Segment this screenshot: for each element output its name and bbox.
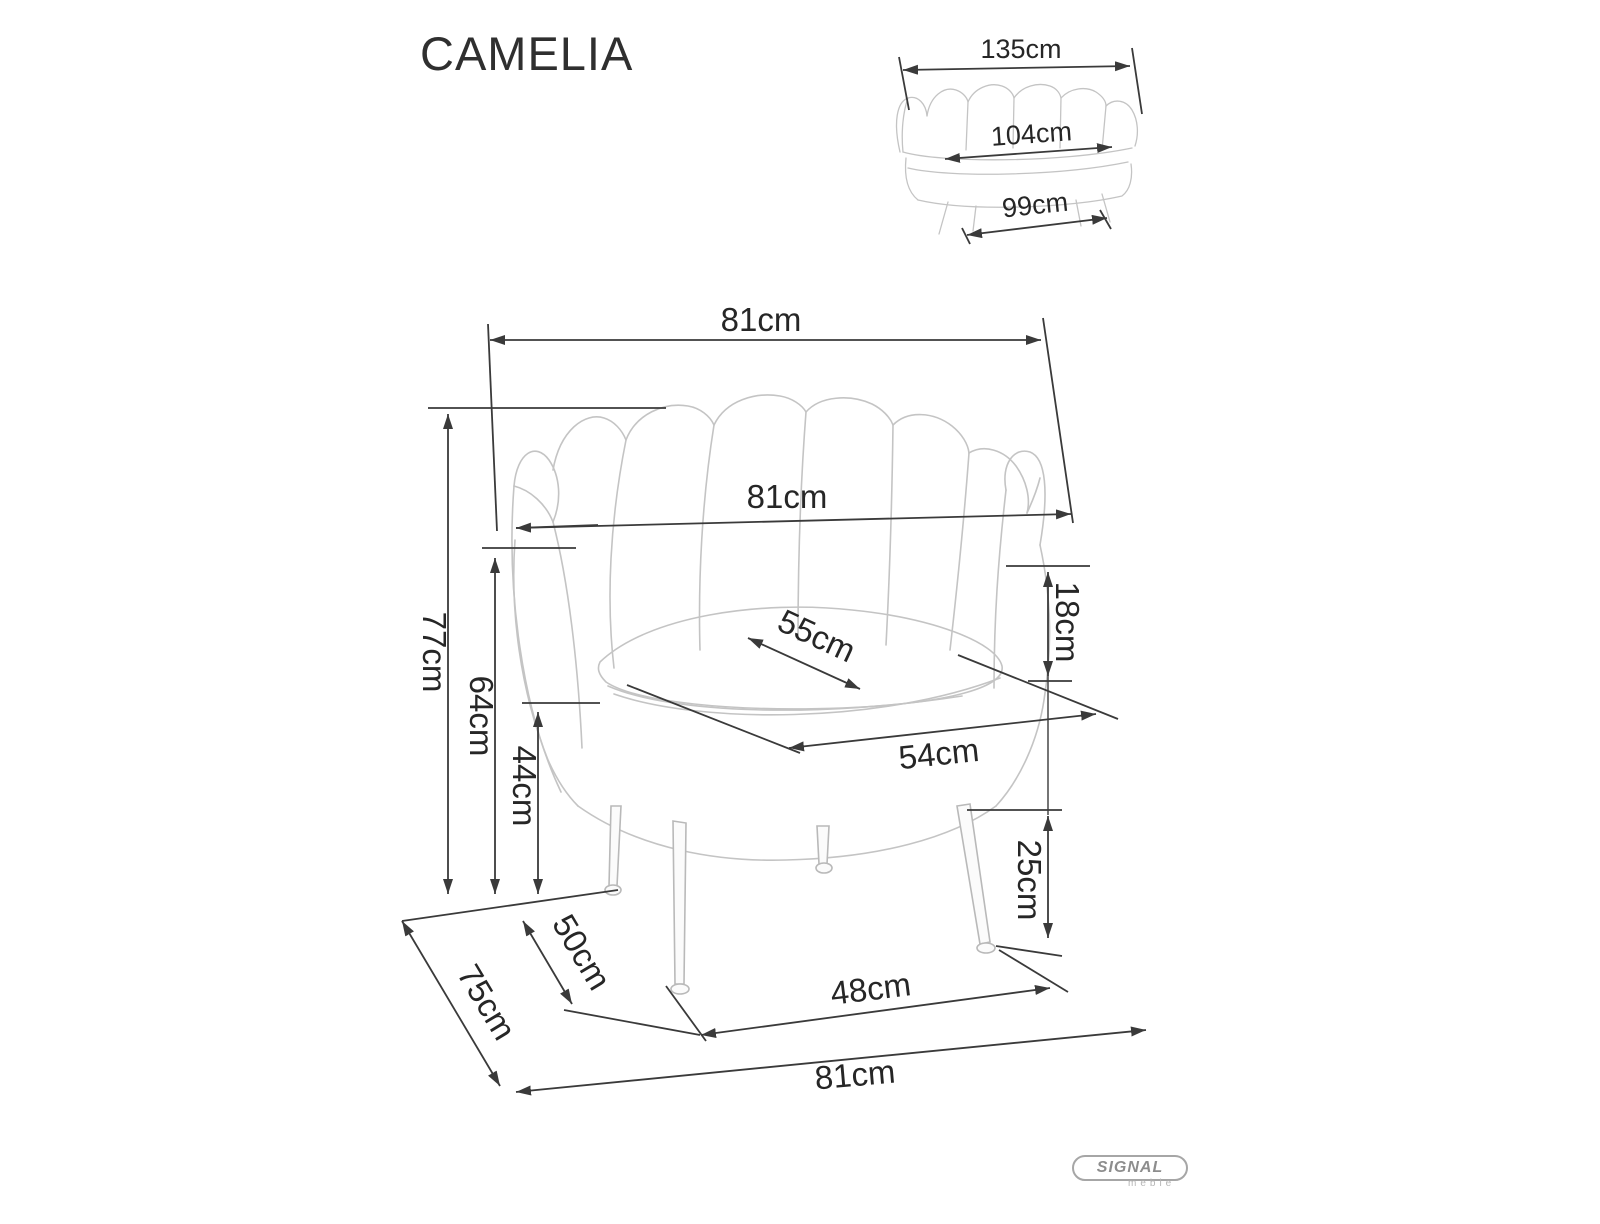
dim-label-leg-height: 25cm xyxy=(1011,840,1048,921)
dim-label-sofa-base-width: 99cm xyxy=(1001,187,1070,224)
dim-label-sofa-total-width: 135cm xyxy=(980,34,1061,64)
drawing-sheet: CAMELIA xyxy=(0,0,1600,1224)
dim-label-total-depth: 75cm xyxy=(450,958,523,1046)
dim-label-front-leg-spacing: 48cm xyxy=(828,965,913,1012)
brand-name: SIGNAL xyxy=(1097,1159,1163,1177)
dimension-diagram: 135cm 104cm 99cm xyxy=(0,0,1600,1224)
dim-label-backrest-width: 81cm xyxy=(747,478,828,515)
brand-subtitle: meble xyxy=(1128,1178,1175,1189)
dim-label-backrest-above-seat: 18cm xyxy=(1049,582,1086,663)
dim-label-armrest-height: 64cm xyxy=(463,676,500,757)
dim-label-sofa-seat-width: 104cm xyxy=(990,116,1073,152)
brand-logo: SIGNAL meble xyxy=(1072,1155,1188,1189)
dim-label-seat-width: 54cm xyxy=(897,731,981,776)
armchair-dimension-lines xyxy=(402,318,1146,1092)
dim-label-total-width-top: 81cm xyxy=(721,301,802,338)
chair-legs xyxy=(605,804,995,994)
dim-label-total-height: 77cm xyxy=(416,612,453,693)
dim-label-seat-height: 44cm xyxy=(506,746,543,827)
dim-label-seat-depth-diagonal: 55cm xyxy=(772,602,861,670)
dim-label-leg-depth-spacing: 50cm xyxy=(545,908,618,996)
dim-label-total-width-bottom: 81cm xyxy=(813,1053,897,1097)
